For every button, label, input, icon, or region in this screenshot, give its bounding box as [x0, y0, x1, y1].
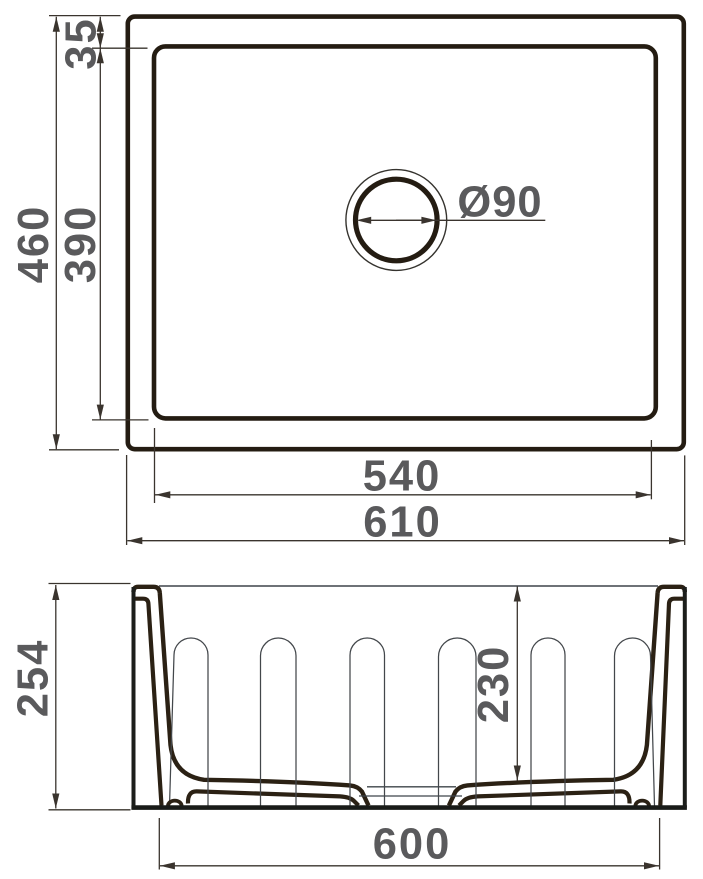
svg-text:35: 35	[58, 17, 106, 69]
svg-text:460: 460	[10, 205, 58, 284]
svg-text:230: 230	[470, 645, 518, 724]
svg-text:Ø90: Ø90	[457, 179, 542, 227]
svg-text:610: 610	[363, 499, 442, 547]
svg-text:540: 540	[363, 453, 442, 501]
svg-text:600: 600	[373, 821, 452, 869]
svg-text:390: 390	[57, 205, 105, 284]
svg-text:254: 254	[10, 639, 58, 718]
